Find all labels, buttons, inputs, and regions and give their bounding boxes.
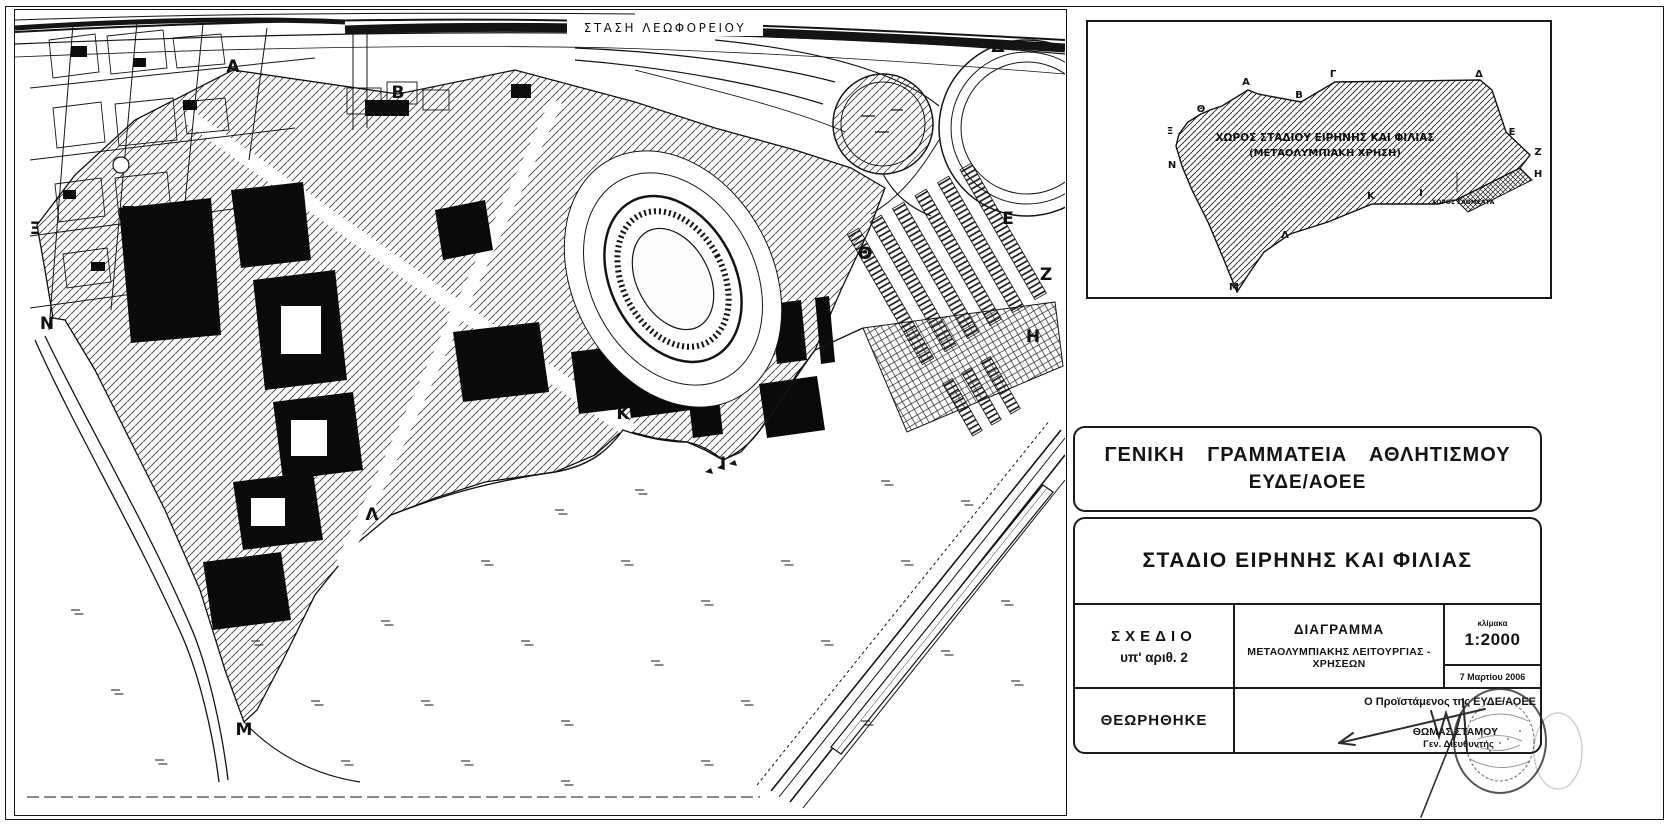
drawing-label: ΣΧΕΔΙΟ [1111,628,1197,645]
inset-letter-iota: Ι [1419,188,1423,199]
inset-letter-eta: Η [1534,169,1542,180]
location-inset-map: ΧΩΡΟΣ ΣΤΑΔΙΟΥ ΕΙΡΗΝΗΣ ΚΑΙ ΦΙΛΙΑΣ (ΜΕΤΑΟΛ… [1086,20,1552,299]
map-letter-zeta: Ζ [1040,265,1052,285]
inset-letter-xi: Ξ [1167,126,1173,137]
map-letter-xi: Ξ [30,219,41,239]
inset-letter-epsilon: Ε [1509,127,1516,138]
bus-stop-label: ΣΤΑΣΗ ΛΕΩΦΟΡΕΙΟΥ [567,18,763,36]
drawing-sheet: ΣΤΑΣΗ ΛΕΩΦΟΡΕΙΟΥ Α Β Δ Ε Ζ Η Θ Ι Κ Λ Μ Ν… [0,0,1669,826]
scale-box: κλίμακα 1:2000 [1445,605,1540,664]
project-title: ΣΤΑΔΙΟ ΕΙΡΗΝΗΣ ΚΑΙ ΦΙΛΙΑΣ [1075,519,1540,605]
map-letter-mu: Μ [236,720,253,740]
agency-header-box: ΓΕΝΙΚΗ ΓΡΑΜΜΑΤΕΙΑ ΑΘΛΗΤΙΣΜΟΥ ΕΥΔΕ/ΑΟΕΕ [1073,426,1542,512]
map-letter-kappa: Κ [616,404,630,424]
approved-cell: ΘΕΩΡΗΘΗΚΕ [1075,687,1235,752]
subject-title: ΔΙΑΓΡΑΜΜΑ [1294,622,1384,637]
map-letter-theta: Θ [858,244,872,264]
drawing-number: υπ' αριθ. 2 [1120,650,1188,665]
scale-value: 1:2000 [1465,630,1521,650]
map-letter-eta: Η [1026,327,1040,347]
inset-letter-beta: Β [1295,90,1303,101]
map-letter-lambda: Λ [365,505,379,525]
scale-label: κλίμακα [1477,619,1507,628]
scale-cell: κλίμακα 1:2000 7 Μαρτίου 2006 [1445,605,1540,687]
map-letter-delta: Δ [991,37,1005,57]
railway-lines [757,420,1065,808]
inset-letter-alpha: Α [1242,77,1250,88]
inset-letter-nu: Ν [1168,160,1176,171]
signature-cell: Ο Προϊστάμενος της ΕΥΔΕ/ΑΟΕΕ [1235,687,1540,752]
title-block: ΣΤΑΔΙΟ ΕΙΡΗΝΗΣ ΚΑΙ ΦΙΛΙΑΣ ΣΧΕΔΙΟ υπ' αρι… [1073,517,1542,754]
inset-area-label-line1: ΧΩΡΟΣ ΣΤΑΔΙΟΥ ΕΙΡΗΝΗΣ ΚΑΙ ΦΙΛΙΑΣ [1215,132,1434,144]
subject-subtitle: ΜΕΤΑΟΛΥΜΠΙΑΚΗΣ ΛΕΙΤΟΥΡΓΙΑΣ - ΧΡΗΣΕΩΝ [1239,646,1439,670]
inset-site-polygon [1176,80,1530,292]
inset-letter-delta: Δ [1475,69,1483,80]
inset-letter-theta: Θ [1197,104,1206,115]
agency-department: ΕΥΔΕ/ΑΟΕΕ [1249,472,1367,494]
inset-area-label-line2: (ΜΕΤΑΟΛΥΜΠΙΑΚΗ ΧΡΗΣΗ) [1249,148,1401,159]
bus-stop-text: ΣΤΑΣΗ ΛΕΩΦΟΡΕΙΟΥ [584,21,747,35]
signer-role: Γεν. Διευθυντής [1423,739,1494,750]
inset-letter-mu: Μ [1229,282,1239,293]
site-plan-map: ΣΤΑΣΗ ΛΕΩΦΟΡΕΙΟΥ Α Β Δ Ε Ζ Η Θ Ι Κ Λ Μ Ν… [14,9,1067,816]
signer-name: ΘΩΜΑΣ ΣΤΑΜΟΥ [1413,726,1498,738]
inset-letter-zeta: Ζ [1534,147,1541,158]
agency-name: ΓΕΝΙΚΗ ΓΡΑΜΜΑΤΕΙΑ ΑΘΛΗΤΙΣΜΟΥ [1104,444,1510,467]
roundabout [833,74,933,174]
inset-letter-lambda: Λ [1281,230,1289,241]
velodrome-circle [939,40,1065,216]
map-letter-alpha: Α [226,57,240,77]
pier [831,485,1053,754]
drawing-subject-cell: ΔΙΑΓΡΑΜΜΑ ΜΕΤΑΟΛΥΜΠΙΑΚΗΣ ΛΕΙΤΟΥΡΓΙΑΣ - Χ… [1235,605,1445,687]
drawing-number-cell: ΣΧΕΔΙΟ υπ' αριθ. 2 [1075,605,1235,687]
map-letter-nu: Ν [40,314,54,334]
map-letter-beta: Β [392,83,405,103]
inset-letter-kappa: Κ [1367,191,1376,202]
inset-letter-gamma: Γ [1330,69,1337,80]
inset-side-label: ΧΩΡΟΣ ΣΑΟΜΕΛΤΑ [1432,199,1495,206]
map-letter-epsilon: Ε [1002,209,1014,229]
site-area [37,70,885,722]
title-block-grid: ΣΧΕΔΙΟ υπ' αριθ. 2 ΔΙΑΓΡΑΜΜΑ ΜΕΤΑΟΛΥΜΠΙΑ… [1075,605,1540,752]
map-letter-iota: Ι [720,454,726,474]
